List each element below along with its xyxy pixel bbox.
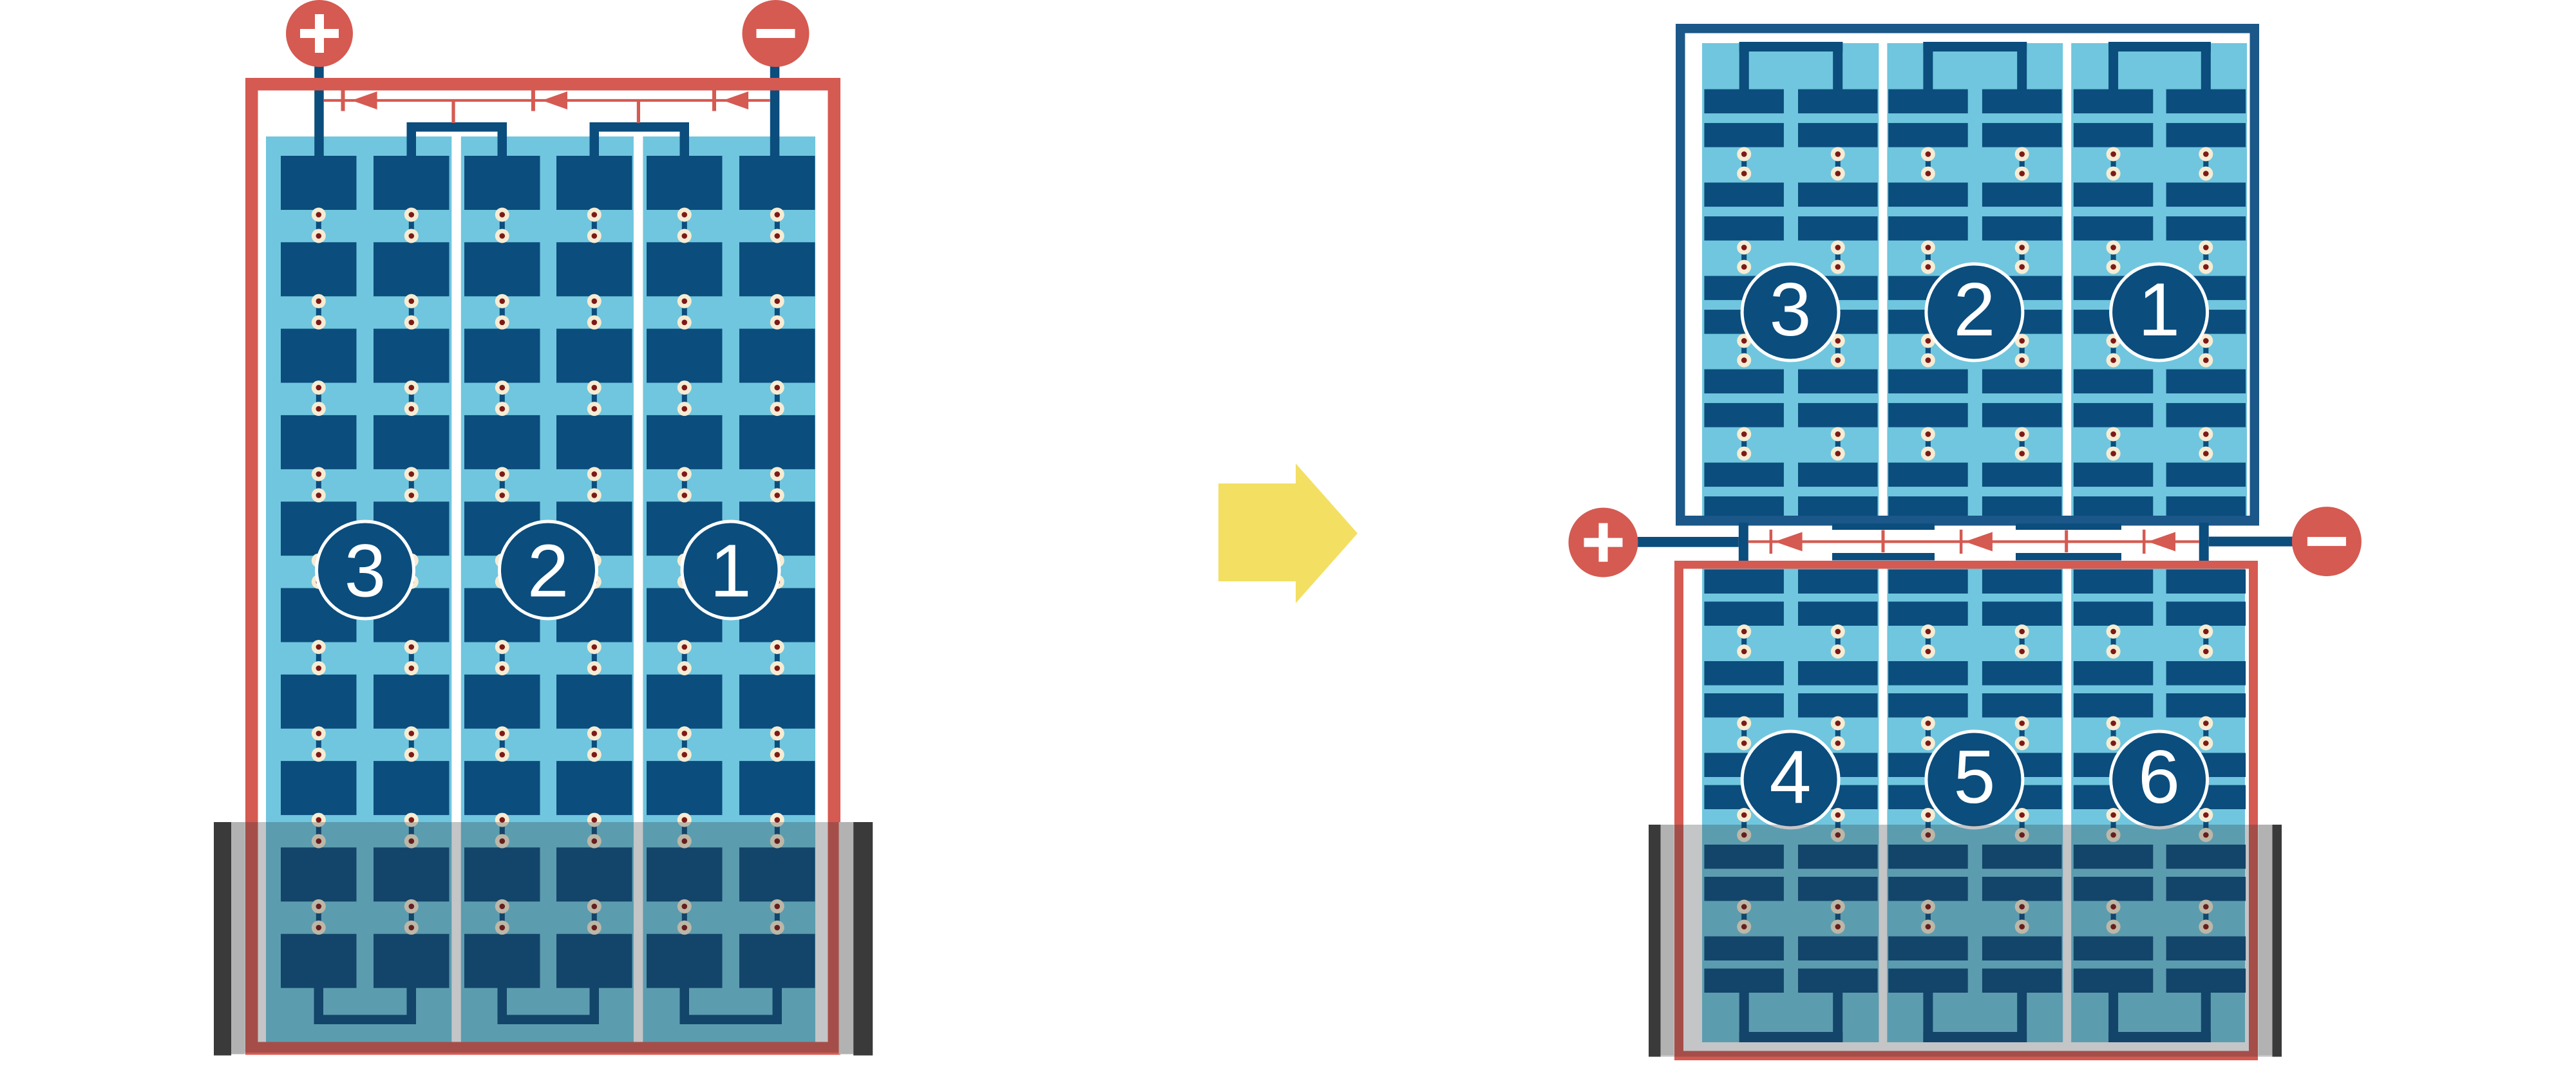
svg-text:4: 4 (1770, 735, 1812, 819)
svg-text:3: 3 (1770, 267, 1812, 351)
svg-text:1: 1 (2138, 267, 2180, 351)
svg-text:3: 3 (345, 529, 386, 613)
svg-text:5: 5 (1953, 735, 1995, 819)
svg-text:2: 2 (1953, 267, 1995, 351)
svg-text:1: 1 (710, 529, 752, 613)
svg-text:2: 2 (527, 529, 569, 613)
svg-text:6: 6 (2138, 735, 2180, 819)
